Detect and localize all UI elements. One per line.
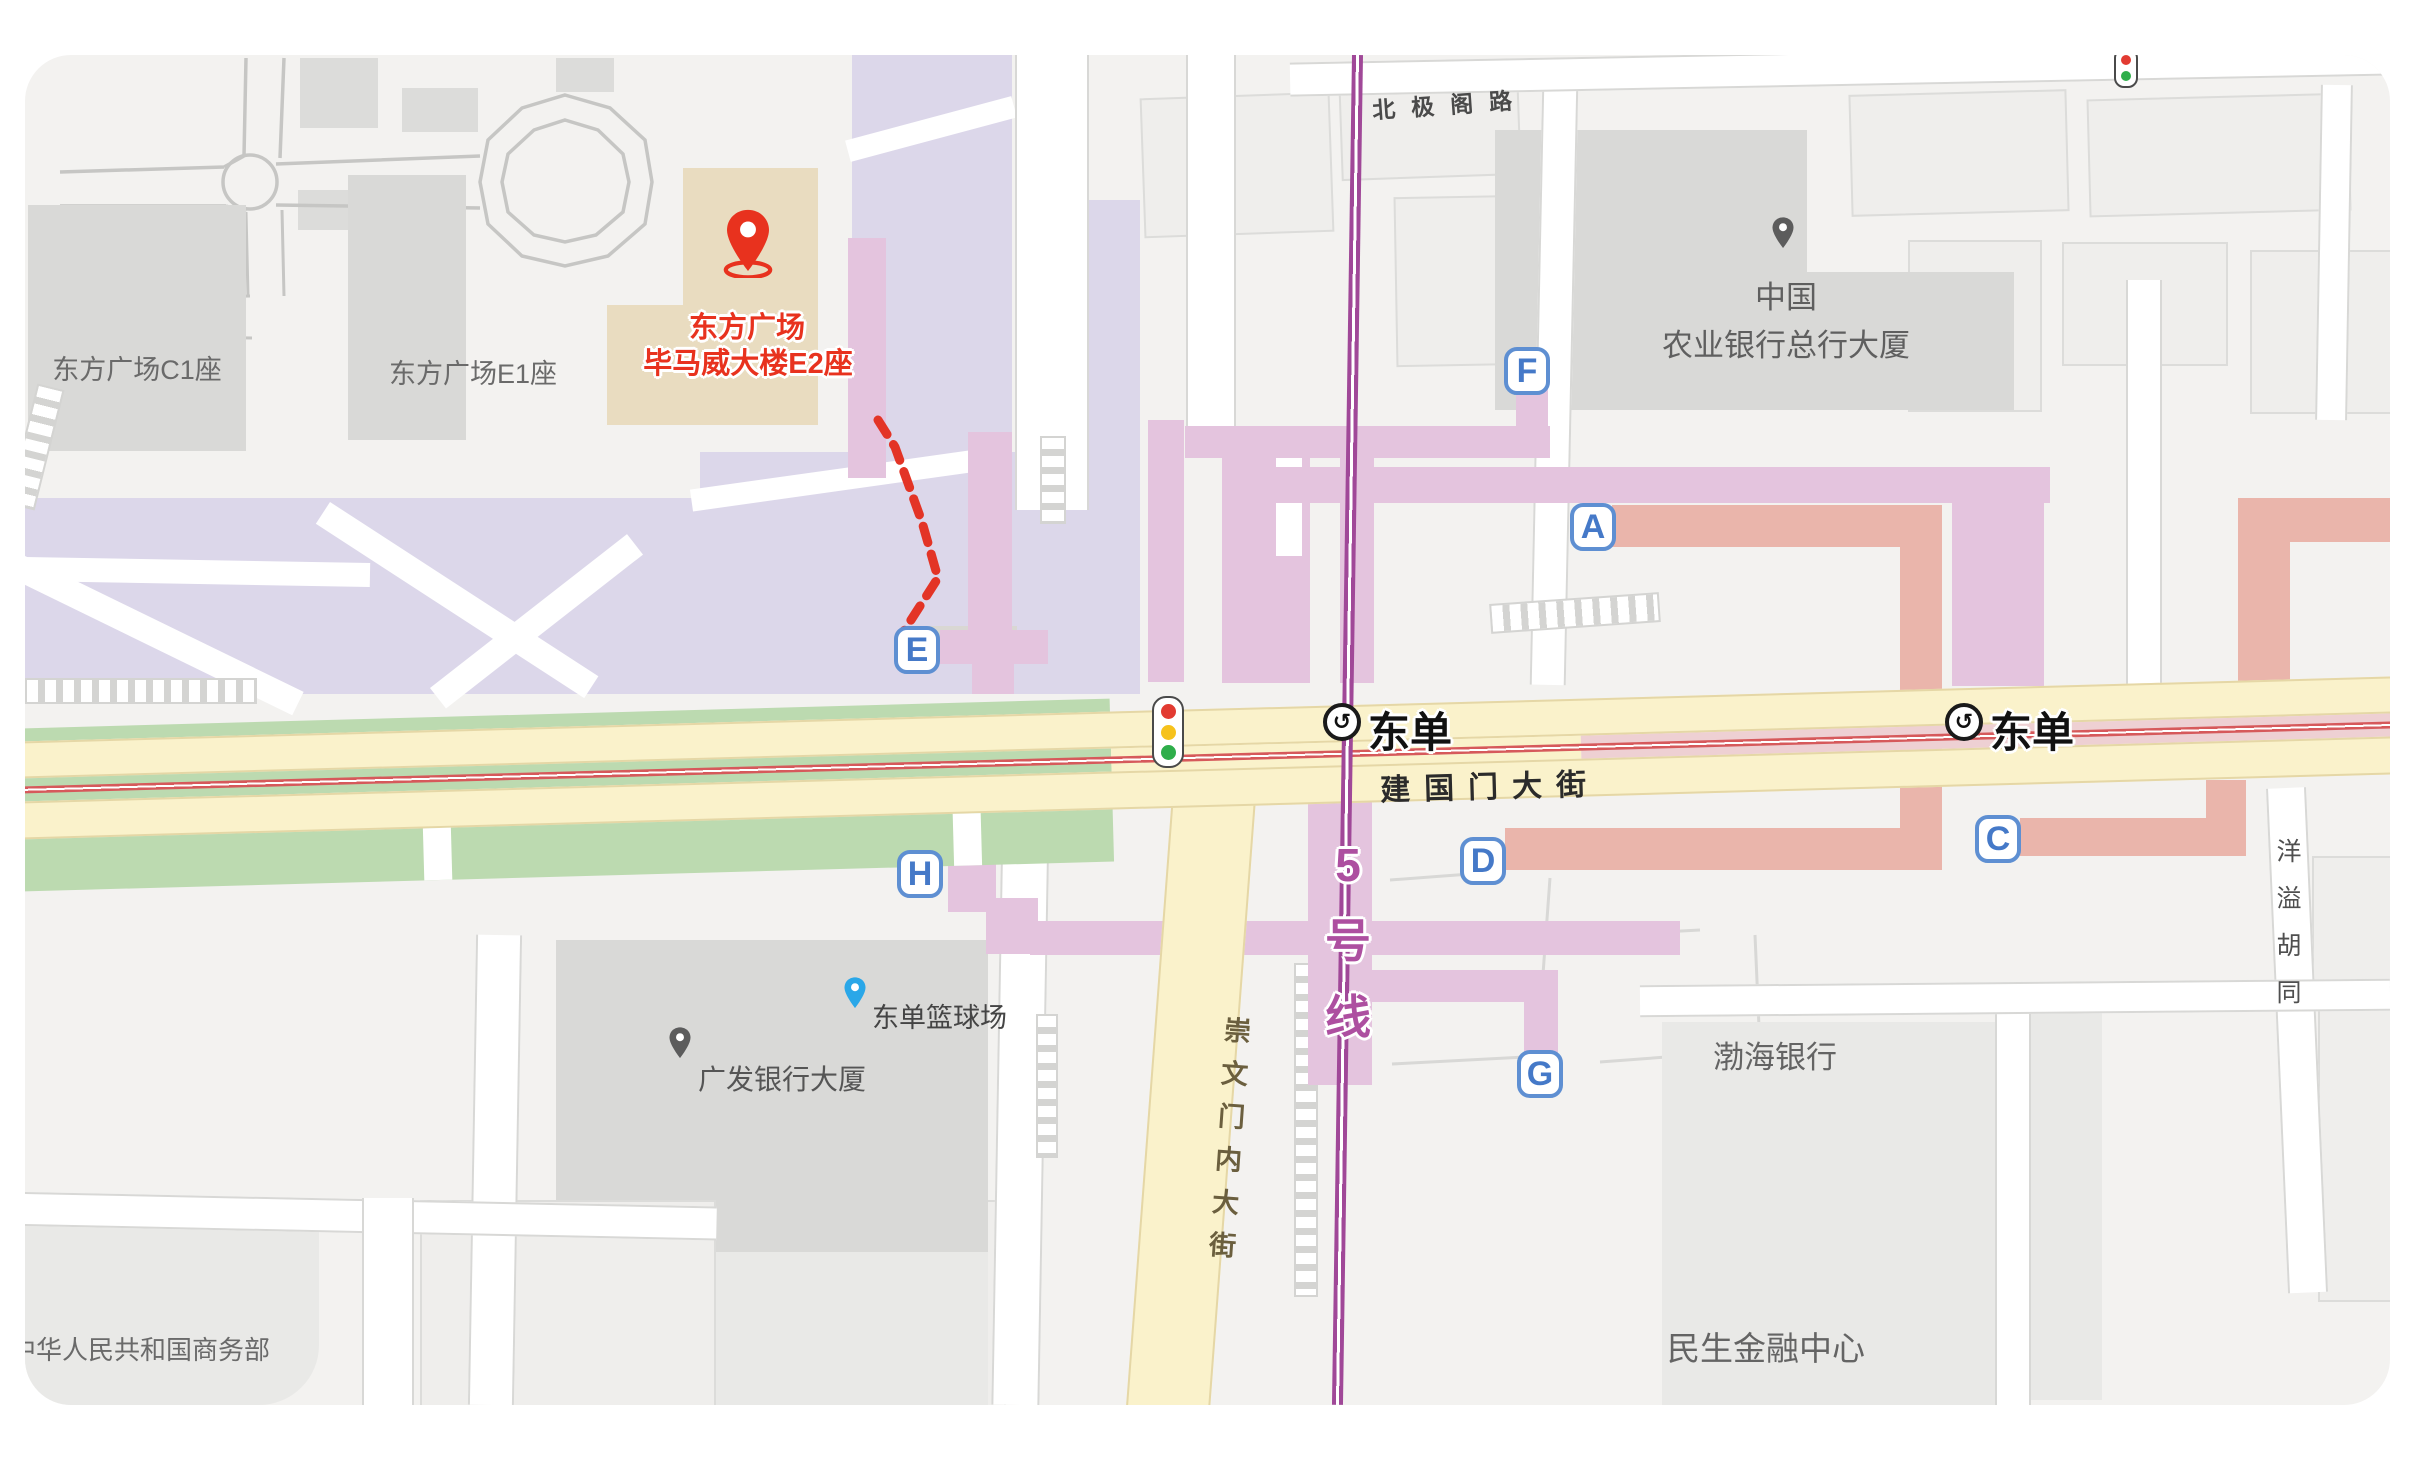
exit-badge-g[interactable]: G xyxy=(1517,1050,1563,1098)
yellow-light xyxy=(1161,725,1176,740)
exit-badge-a[interactable]: A xyxy=(1570,503,1616,551)
abc-bank-pin-icon[interactable] xyxy=(1769,216,1797,252)
abc-bank-label-line1: 中国 xyxy=(1755,272,1817,317)
metro-station-icon[interactable]: ↺ xyxy=(1323,703,1361,741)
kpmg-label-line2: 毕马威大楼E2座 xyxy=(643,340,852,382)
map-screenshot: 建国门大街 5号线 北极阁路 崇文门内大街 洋溢胡同 ↺ 东单 ↺ 东单 A C… xyxy=(0,0,2418,1472)
red-light xyxy=(1161,704,1176,719)
guangfa-label: 广发银行大厦 xyxy=(698,1058,866,1098)
mofcom-label: 中华人民共和国商务部 xyxy=(25,1330,270,1367)
exit-badge-h[interactable]: H xyxy=(897,850,943,898)
map-world: 建国门大街 5号线 北极阁路 崇文门内大街 洋溢胡同 ↺ 东单 ↺ 东单 A C… xyxy=(25,55,2390,1405)
exit-badge-d[interactable]: D xyxy=(1460,837,1506,885)
dongfang-c1-label: 东方广场C1座 xyxy=(52,348,222,387)
metro-station-label: 东单 xyxy=(1368,699,1452,760)
basketball-label: 东单篮球场 xyxy=(872,996,1007,1035)
traffic-light-icon[interactable] xyxy=(1152,696,1184,768)
basketball-pin-icon[interactable] xyxy=(841,976,869,1012)
traffic-light-icon-ne[interactable] xyxy=(2114,55,2138,88)
dongfang-e1-label: 东方广场E1座 xyxy=(389,352,557,391)
exit-badge-f[interactable]: F xyxy=(1504,347,1550,395)
minsheng-label: 民生金融中心 xyxy=(1667,1322,1865,1370)
red-light xyxy=(2121,55,2131,65)
bohai-label: 渤海银行 xyxy=(1713,1032,1837,1077)
map-canvas[interactable]: 建国门大街 5号线 北极阁路 崇文门内大街 洋溢胡同 ↺ 东单 ↺ 东单 A C… xyxy=(25,55,2390,1405)
green-light xyxy=(1161,745,1176,760)
abc-bank-label-line2: 农业银行总行大厦 xyxy=(1662,320,1910,365)
green-light xyxy=(2121,71,2131,81)
metro-station-label-east: 东单 xyxy=(1990,699,2074,760)
kpmg-pin-icon[interactable] xyxy=(719,208,777,278)
guangfa-pin-icon[interactable] xyxy=(666,1026,694,1062)
metro-station-icon[interactable]: ↺ xyxy=(1945,703,1983,741)
exit-badge-e[interactable]: E xyxy=(894,626,940,674)
road-label-yangyi: 洋溢胡同 xyxy=(2272,840,2306,1006)
exit-badge-c[interactable]: C xyxy=(1975,815,2021,863)
